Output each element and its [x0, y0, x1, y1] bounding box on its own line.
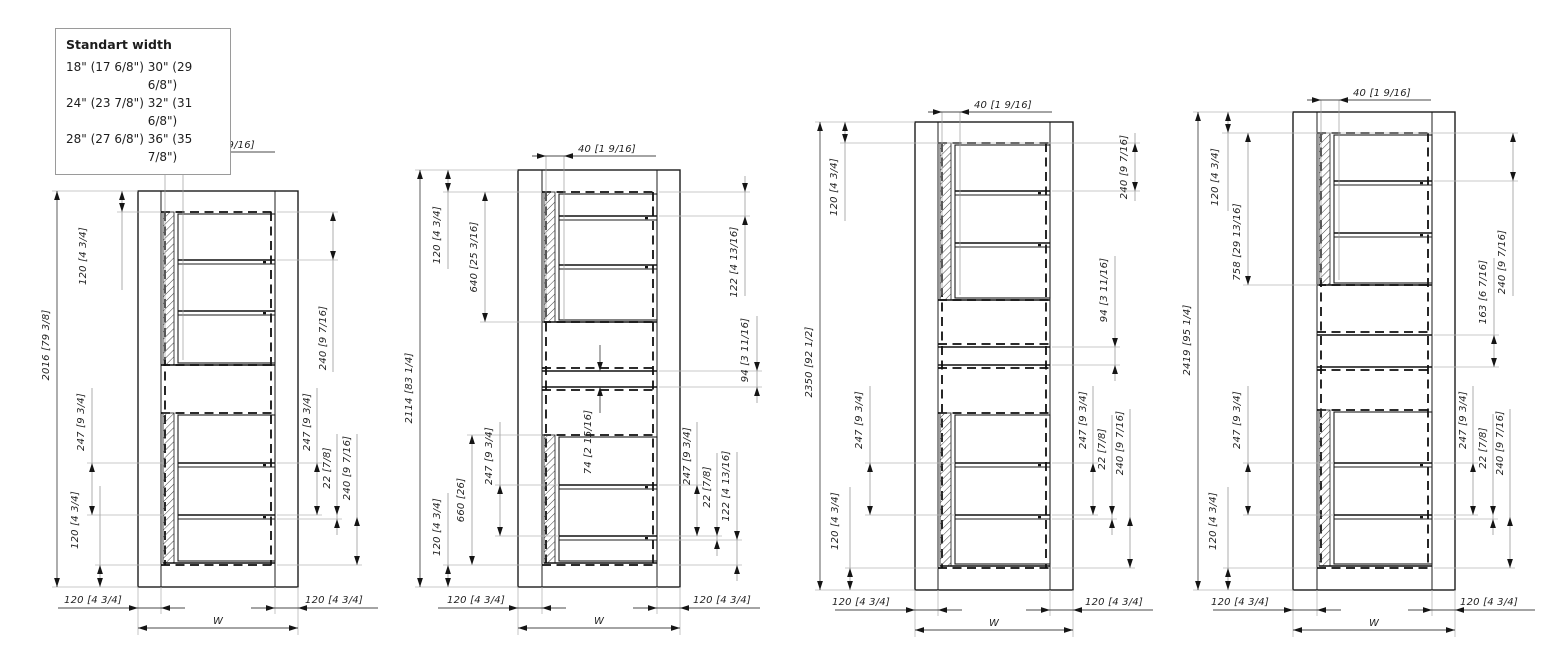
- dim-bottom-left: 120 [4 3/4]: [832, 597, 962, 613]
- legend-size: 24" (23 7/8"): [66, 94, 148, 130]
- upper-shelf-module: [1319, 133, 1432, 285]
- dim-label: 22 [7/8]: [322, 447, 333, 488]
- arrowhead-icon: [97, 578, 103, 587]
- arrowhead-icon: [482, 192, 488, 201]
- arrowhead-icon: [314, 506, 320, 515]
- dim-label: 2114 [83 1/4]: [404, 352, 415, 423]
- dim-label: 120 [4 3/4]: [832, 597, 890, 608]
- arrowhead-icon: [1490, 506, 1496, 515]
- legend-size: 36" (35 7/8"): [148, 130, 220, 166]
- arrowhead-icon: [445, 578, 451, 587]
- arrowhead-icon: [754, 362, 760, 371]
- dim-bottom-right: 120 [4 3/4]: [1026, 597, 1153, 613]
- dim-label: W: [594, 616, 605, 627]
- arrowhead-icon: [1470, 463, 1476, 472]
- shelf: [1334, 181, 1432, 185]
- dim-right-band: 94 [3 11/16]: [659, 316, 762, 403]
- arrowhead-icon: [1132, 143, 1138, 152]
- hatch-strip: [163, 413, 174, 563]
- legend-row: 18" (17 6/8") 30" (29 6/8"): [66, 58, 220, 94]
- dim-label: 2350 [92 1/2]: [804, 326, 815, 397]
- dim-label: 660 [26]: [456, 478, 467, 522]
- dim-label: 120 [4 3/4]: [1460, 597, 1518, 608]
- dim-overall-height: 2419 [95 1/4]: [1182, 112, 1293, 590]
- arrowhead-icon: [1127, 559, 1133, 568]
- dim-label: 120 [4 3/4]: [432, 206, 443, 264]
- arrowhead-icon: [1090, 506, 1096, 515]
- arrowhead-icon: [734, 531, 740, 540]
- arrowhead-icon: [714, 540, 720, 549]
- arrowhead-icon: [842, 134, 848, 143]
- middle-band: [1317, 335, 1432, 367]
- arrowhead-icon: [847, 568, 853, 577]
- arrowhead-icon: [119, 191, 125, 200]
- panel-elevation-2419: 40 [1 9/16]2419 [95 1/4]120 [4 3/4]758 […: [1182, 88, 1535, 637]
- dim-bottom-left: 120 [4 3/4]: [438, 595, 566, 611]
- dim-left-top: 120 [4 3/4]: [432, 170, 542, 269]
- arrowhead-icon: [97, 565, 103, 574]
- arrowhead-icon: [1245, 276, 1251, 285]
- dim-label: 120 [4 3/4]: [1211, 597, 1269, 608]
- dim-label: 240 [9 7/16]: [1497, 230, 1508, 294]
- arrowhead-icon: [1510, 133, 1516, 142]
- dim-label: W: [989, 618, 1000, 629]
- arrowhead-icon: [1225, 124, 1231, 133]
- panel-elevation-2016: 40 [1 9/16]2016 [79 3/8]120 [4 3/4]247 […: [41, 140, 378, 635]
- dim-label: W: [1369, 618, 1380, 629]
- hatch-strip: [940, 413, 951, 566]
- arrowhead-icon: [867, 463, 873, 472]
- legend-row: 24" (23 7/8") 32" (31 6/8"): [66, 94, 220, 130]
- arrowhead-icon: [933, 109, 942, 115]
- arrowhead-icon: [314, 463, 320, 472]
- arrowhead-icon: [138, 625, 147, 631]
- dim-left-shelf-gap: 247 [9 3/4]: [76, 388, 163, 515]
- arrowhead-icon: [1245, 463, 1251, 472]
- drawing-rect: [1420, 234, 1423, 236]
- arrowhead-icon: [680, 605, 689, 611]
- arrowhead-icon: [597, 362, 603, 371]
- lower-shelf-module: [163, 413, 275, 563]
- drawing-rect: [1038, 464, 1041, 466]
- dim-label: 22 [7/8]: [1097, 428, 1108, 469]
- drawing-rect: [1038, 192, 1041, 194]
- dim-width: W: [138, 616, 298, 631]
- drawing-rect: [915, 122, 1073, 590]
- dim-label: 122 [4 13/16]: [729, 226, 740, 297]
- lower-shelf-module: [1319, 410, 1432, 566]
- door-frame: [915, 122, 1073, 590]
- shelf: [1334, 233, 1432, 237]
- dim-right-shelf-gap: 247 [9 3/4]: [277, 388, 322, 515]
- dim-label: 2419 [95 1/4]: [1182, 304, 1193, 375]
- arrowhead-icon: [354, 517, 360, 526]
- drawing-rect: [263, 261, 266, 263]
- dim-right-band: 94 [3 11/16]: [1052, 256, 1120, 381]
- dim-label: 122 [4 13/16]: [721, 450, 732, 521]
- dim-middle-band: 74 [2 15/16]: [583, 345, 603, 474]
- dim-label: 640 [25 3/16]: [469, 221, 480, 292]
- arrowhead-icon: [518, 625, 527, 631]
- dim-right-top: 240 [9 7/16]: [277, 212, 338, 372]
- shelf: [955, 463, 1050, 467]
- dim-label: 247 [9 3/4]: [302, 393, 313, 451]
- dim-bottom-right: 120 [4 3/4]: [251, 595, 378, 611]
- legend-size: 32" (31 6/8"): [148, 94, 220, 130]
- arrowhead-icon: [1245, 506, 1251, 515]
- drawing-rect: [645, 217, 648, 219]
- arrowhead-icon: [1225, 581, 1231, 590]
- arrowhead-icon: [89, 506, 95, 515]
- dim-label: 120 [4 3/4]: [64, 595, 122, 606]
- arrowhead-icon: [1225, 568, 1231, 577]
- arrowhead-icon: [1491, 358, 1497, 367]
- dim-right-bottom-gap: 240 [9 7/16]: [277, 434, 362, 565]
- dim-overall-height: 2016 [79 3/8]: [41, 191, 138, 587]
- arrowhead-icon: [1112, 338, 1118, 347]
- shelf: [178, 311, 275, 315]
- door-frame: [518, 170, 680, 587]
- arrowhead-icon: [1195, 581, 1201, 590]
- arrowhead-icon: [129, 605, 138, 611]
- dim-right-top: 122 [4 13/16]: [659, 176, 750, 298]
- arrowhead-icon: [417, 170, 423, 179]
- dim-label: 247 [9 3/4]: [1458, 391, 1469, 449]
- drawing-rect: [1334, 135, 1432, 283]
- arrowhead-icon: [1507, 517, 1513, 526]
- arrowhead-icon: [648, 605, 657, 611]
- arrowhead-icon: [938, 607, 947, 613]
- arrowhead-icon: [742, 216, 748, 225]
- arrowhead-icon: [1109, 506, 1115, 515]
- drawing-rect: [1038, 516, 1041, 518]
- arrowhead-icon: [334, 506, 340, 515]
- arrowhead-icon: [1312, 97, 1321, 103]
- dim-label: 240 [9 7/16]: [342, 436, 353, 500]
- legend-size: 18" (17 6/8"): [66, 58, 148, 94]
- dim-label: 74 [2 15/16]: [583, 410, 594, 474]
- dim-left-bottom: 120 [4 3/4]: [830, 487, 938, 590]
- arrowhead-icon: [906, 607, 915, 613]
- hatch-strip: [1319, 410, 1330, 566]
- door-elevations-canvas: 40 [1 9/16]2016 [79 3/8]120 [4 3/4]247 […: [0, 0, 1560, 670]
- drawing-rect: [955, 145, 1050, 298]
- drawing-rect: [559, 437, 657, 561]
- dim-left-bottom: 120 [4 3/4]: [1208, 487, 1317, 590]
- upper-shelf-module: [163, 212, 275, 365]
- drawing-rect: [263, 464, 266, 466]
- arrowhead-icon: [1446, 627, 1455, 633]
- shelf: [559, 485, 657, 489]
- door-frame: [1293, 112, 1455, 590]
- drawing-rect: [178, 214, 275, 363]
- shelf: [955, 191, 1050, 195]
- panel-elevation-2350: 40 [1 9/16]2350 [92 1/2]120 [4 3/4]247 […: [804, 100, 1153, 637]
- arrowhead-icon: [89, 463, 95, 472]
- dim-right-bottom-gap: 240 [9 7/16]: [1052, 409, 1135, 568]
- arrowhead-icon: [734, 565, 740, 574]
- drawing-rect: [1334, 412, 1432, 564]
- drawing-rect: [1038, 244, 1041, 246]
- arrowhead-icon: [754, 387, 760, 396]
- dim-label: 22 [7/8]: [702, 466, 713, 507]
- arrowhead-icon: [1109, 519, 1115, 528]
- drawing-rect: [955, 415, 1050, 564]
- dim-overall-height: 2114 [83 1/4]: [404, 170, 518, 587]
- legend-title: Standart width: [66, 36, 220, 55]
- panel-elevation-2114: 40 [1 9/16]2114 [83 1/4]120 [4 3/4]640 […: [404, 144, 762, 635]
- standard-width-legend: Standart width 18" (17 6/8") 30" (29 6/8…: [55, 28, 231, 175]
- middle-band: [938, 347, 1050, 365]
- dim-right-bottom-gap: 122 [4 13/16]: [659, 450, 742, 581]
- dim-bottom-left: 120 [4 3/4]: [1211, 597, 1341, 613]
- arrowhead-icon: [1090, 463, 1096, 472]
- arrowhead-icon: [482, 313, 488, 322]
- legend-size: 28" (27 6/8"): [66, 130, 148, 166]
- dim-label: 40 [1 9/16]: [974, 100, 1032, 111]
- arrowhead-icon: [1041, 607, 1050, 613]
- dim-left-upper-module: 758 [29 13/16]: [1232, 133, 1319, 285]
- drawing-rect: [645, 266, 648, 268]
- dim-label: 120 [4 3/4]: [1210, 148, 1221, 206]
- drawing-rect: [178, 415, 275, 561]
- arrowhead-icon: [1317, 607, 1326, 613]
- dim-label: 94 [3 11/16]: [1099, 258, 1110, 322]
- arrowhead-icon: [1064, 627, 1073, 633]
- arrowhead-icon: [842, 122, 848, 131]
- arrowhead-icon: [694, 485, 700, 494]
- dim-left-upper-module: 640 [25 3/16]: [469, 192, 544, 322]
- arrowhead-icon: [1510, 172, 1516, 181]
- lower-shelf-module: [544, 435, 657, 563]
- dim-label: 240 [9 7/16]: [1115, 411, 1126, 475]
- arrowhead-icon: [54, 578, 60, 587]
- dim-label: 120 [4 3/4]: [78, 227, 89, 285]
- arrowhead-icon: [469, 435, 475, 444]
- shelf: [559, 265, 657, 269]
- dim-right-shelf-gap: 247 [9 3/4]: [1052, 386, 1098, 515]
- arrowhead-icon: [266, 605, 275, 611]
- shelf: [559, 216, 657, 220]
- dim-label: 163 [6 7/16]: [1478, 260, 1489, 324]
- drawing-rect: [138, 191, 298, 587]
- legend-size: 30" (29 6/8"): [148, 58, 220, 94]
- arrowhead-icon: [54, 191, 60, 200]
- shelf: [1334, 463, 1432, 467]
- upper-shelf-module: [940, 143, 1050, 300]
- hatch-strip: [544, 435, 555, 563]
- arrowhead-icon: [497, 527, 503, 536]
- drawing-rect: [263, 516, 266, 518]
- arrowhead-icon: [445, 183, 451, 192]
- dim-width: W: [915, 618, 1073, 633]
- arrowhead-icon: [1245, 133, 1251, 142]
- lower-shelf-module: [940, 413, 1050, 566]
- drawing-rect: [263, 312, 266, 314]
- arrowhead-icon: [289, 625, 298, 631]
- arrowhead-icon: [817, 122, 823, 131]
- dim-left-bottom: 120 [4 3/4]: [70, 486, 161, 587]
- arrowhead-icon: [330, 212, 336, 221]
- arrowhead-icon: [742, 183, 748, 192]
- arrowhead-icon: [161, 605, 170, 611]
- dim-label: 22 [7/8]: [1478, 427, 1489, 468]
- arrowhead-icon: [817, 581, 823, 590]
- dim-label: 120 [4 3/4]: [829, 158, 840, 216]
- arrowhead-icon: [671, 625, 680, 631]
- arrowhead-icon: [847, 581, 853, 590]
- dim-label: 120 [4 3/4]: [305, 595, 363, 606]
- drawing-rect: [645, 537, 648, 539]
- arrowhead-icon: [564, 153, 573, 159]
- arrowhead-icon: [867, 506, 873, 515]
- dim-left-top: 120 [4 3/4]: [1210, 112, 1518, 211]
- arrowhead-icon: [334, 519, 340, 528]
- dim-right-top: 240 [9 7/16]: [1434, 133, 1518, 296]
- arrowhead-icon: [445, 170, 451, 179]
- drawing-rect: [559, 194, 657, 320]
- shelf: [178, 515, 275, 519]
- drawing-rect: [645, 486, 648, 488]
- dim-bottom-left: 120 [4 3/4]: [58, 595, 185, 611]
- shelf: [178, 463, 275, 467]
- dim-label: 2016 [79 3/8]: [41, 309, 52, 380]
- arrowhead-icon: [1490, 519, 1496, 528]
- dim-label: 240 [9 7/16]: [318, 306, 329, 370]
- arrowhead-icon: [445, 565, 451, 574]
- arrowhead-icon: [119, 203, 125, 212]
- dim-right-shelf-gap: 247 [9 3/4]: [1434, 386, 1478, 515]
- arrowhead-icon: [1339, 97, 1348, 103]
- arrowhead-icon: [354, 556, 360, 565]
- dim-label: 247 [9 3/4]: [484, 427, 495, 485]
- arrowhead-icon: [1423, 607, 1432, 613]
- arrowhead-icon: [469, 556, 475, 565]
- dim-overall-height: 2350 [92 1/2]: [804, 122, 915, 590]
- arrowhead-icon: [542, 605, 551, 611]
- dim-label: 120 [4 3/4]: [447, 595, 505, 606]
- dim-bottom-right: 120 [4 3/4]: [1408, 597, 1535, 613]
- arrowhead-icon: [597, 387, 603, 396]
- dim-left-top: 120 [4 3/4]: [78, 191, 161, 290]
- shelf: [955, 243, 1050, 247]
- dim-right-band: 163 [6 7/16]: [1434, 258, 1499, 367]
- arrowhead-icon: [330, 251, 336, 260]
- technical-drawing-page: 40 [1 9/16]2016 [79 3/8]120 [4 3/4]247 […: [0, 0, 1560, 670]
- dim-label: 758 [29 13/16]: [1232, 203, 1243, 281]
- dim-label: 247 [9 3/4]: [682, 427, 693, 485]
- arrowhead-icon: [960, 109, 969, 115]
- dim-label: 120 [4 3/4]: [432, 498, 443, 556]
- arrowhead-icon: [1470, 506, 1476, 515]
- dim-label: 120 [4 3/4]: [830, 492, 841, 550]
- dim-label: 120 [4 3/4]: [693, 595, 751, 606]
- drawing-rect: [1420, 516, 1423, 518]
- legend-row: 28" (27 6/8") 36" (35 7/8"): [66, 130, 220, 166]
- dim-label: 240 [9 7/16]: [1495, 411, 1506, 475]
- middle-band: [542, 371, 657, 387]
- dim-label: 247 [9 3/4]: [1232, 391, 1243, 449]
- arrowhead-icon: [1127, 517, 1133, 526]
- arrowhead-icon: [915, 627, 924, 633]
- dim-label: 120 [4 3/4]: [70, 491, 81, 549]
- dim-label: 240 [9 7/16]: [1119, 135, 1130, 199]
- arrowhead-icon: [1073, 607, 1082, 613]
- upper-shelf-module: [544, 192, 657, 322]
- arrowhead-icon: [497, 485, 503, 494]
- arrowhead-icon: [417, 578, 423, 587]
- arrowhead-icon: [509, 605, 518, 611]
- arrowhead-icon: [1195, 112, 1201, 121]
- dim-width: W: [1293, 618, 1455, 633]
- arrowhead-icon: [1112, 365, 1118, 374]
- dim-label: 40 [1 9/16]: [578, 144, 636, 155]
- arrowhead-icon: [714, 527, 720, 536]
- dim-label: 120 [4 3/4]: [1085, 597, 1143, 608]
- shelf: [178, 260, 275, 264]
- dim-label: 120 [4 3/4]: [1208, 492, 1219, 550]
- arrowhead-icon: [1225, 112, 1231, 121]
- arrowhead-icon: [1491, 335, 1497, 344]
- arrowhead-icon: [1293, 627, 1302, 633]
- dim-bottom-right: 120 [4 3/4]: [633, 595, 760, 611]
- door-frame: [138, 191, 298, 587]
- dim-right-bottom-gap: 240 [9 7/16]: [1434, 409, 1515, 568]
- shelf: [1334, 515, 1432, 519]
- arrowhead-icon: [1507, 559, 1513, 568]
- drawing-rect: [1420, 182, 1423, 184]
- dim-left-top: 120 [4 3/4]: [829, 122, 1140, 221]
- drawing-rect: [1420, 464, 1423, 466]
- arrowhead-icon: [537, 153, 546, 159]
- arrowhead-icon: [1284, 607, 1293, 613]
- dim-label: 94 [3 11/16]: [740, 318, 751, 382]
- dim-label: 247 [9 3/4]: [76, 393, 87, 451]
- shelf: [559, 536, 657, 540]
- shelf: [955, 515, 1050, 519]
- dim-width: W: [518, 616, 680, 631]
- dim-label: 247 [9 3/4]: [1078, 391, 1089, 449]
- arrowhead-icon: [1132, 182, 1138, 191]
- arrowhead-icon: [694, 527, 700, 536]
- dim-label: W: [213, 616, 224, 627]
- dim-label: 40 [1 9/16]: [1353, 88, 1411, 99]
- dim-label: 247 [9 3/4]: [854, 391, 865, 449]
- dim-left-bottom: 120 [4 3/4]: [432, 493, 542, 587]
